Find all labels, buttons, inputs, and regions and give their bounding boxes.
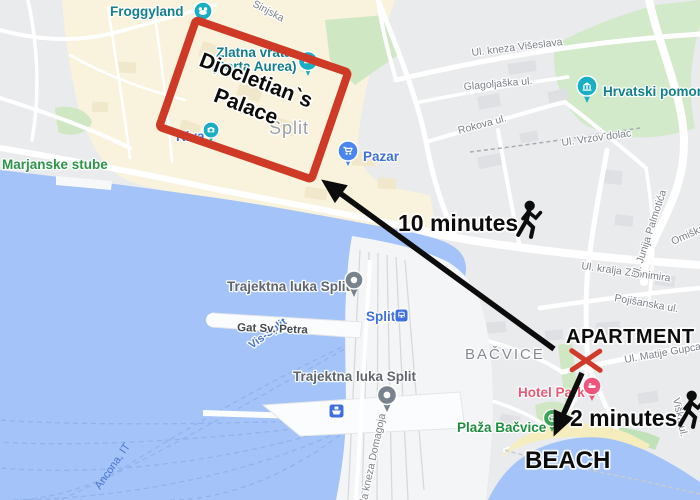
apartment-label: APARTMENT [566, 326, 695, 348]
pier-tip [206, 313, 220, 327]
ferry-terminal-icon[interactable] [329, 404, 344, 418]
street-label-gat-sv-petra: Gat Sv. Petra [237, 322, 309, 336]
split-station-icon[interactable] [395, 309, 408, 322]
poi-label-trajektna-luka-1[interactable]: Trajektna luka Split [227, 279, 351, 294]
poi-label-pazar[interactable]: Pazar [363, 149, 400, 164]
walk-time-beach-label: 2 minutes [570, 405, 677, 431]
transit-label-split-station[interactable]: Split [366, 309, 396, 324]
walk-time-palace-label: 10 minutes [398, 210, 518, 236]
map-canvas: Vis-Split Ancona, IT Sinjska Ul. kneza V… [0, 0, 700, 500]
poi-label-froggyland[interactable]: Froggyland [110, 4, 184, 19]
poi-label-trajektna-luka-2[interactable]: Trajektna luka Split [293, 369, 417, 384]
port-dot-icon [384, 392, 391, 399]
port-dot-icon [351, 277, 357, 283]
poi-label-plaza-bacvice[interactable]: Plaža Bačvice [457, 420, 547, 435]
area-label-bacvice: BAČVICE [465, 346, 545, 363]
camera-icon [208, 127, 215, 132]
poi-label-hrvatski-pomorski[interactable]: Hrvatski pomors [603, 84, 700, 99]
beach-label: BEACH [525, 447, 610, 474]
poi-label-marjanske-stube[interactable]: Marjanske stube [2, 157, 108, 172]
map-screenshot: Vis-Split Ancona, IT Sinjska Ul. kneza V… [0, 0, 700, 500]
